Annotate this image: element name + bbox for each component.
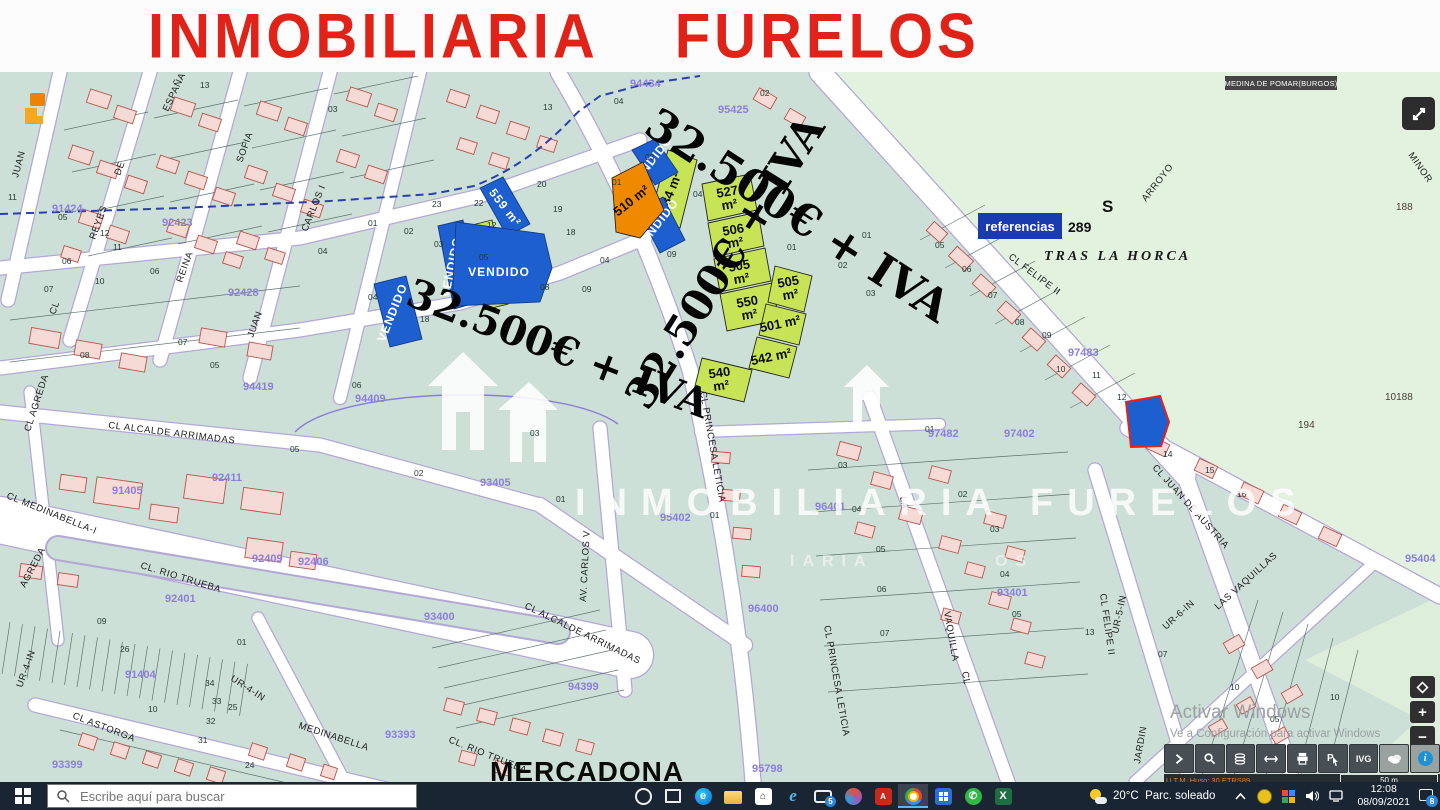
tray-apps-icon[interactable] <box>1277 785 1299 807</box>
search-tool-button[interactable] <box>1195 744 1225 773</box>
parcel-number: 05 <box>876 544 886 554</box>
activate-windows-line1: Activar Windows <box>1170 702 1380 724</box>
parcel-number: 01 <box>612 177 622 187</box>
cadastral-ref: 91424 <box>52 203 83 215</box>
cadastral-ref: 94434 <box>630 78 661 90</box>
parcel-number: 12 <box>487 220 497 230</box>
parcel-number: 06 <box>150 266 160 276</box>
tiles-icon <box>935 788 952 805</box>
cadastral-ref: 97483 <box>1068 347 1099 359</box>
cadastral-ref: 93405 <box>480 477 511 489</box>
parcel-number: 02 <box>760 88 770 98</box>
parcel-number: 14 <box>1163 449 1173 459</box>
ie-taskbar-icon[interactable]: e <box>778 784 808 808</box>
parcel-number: 10 <box>95 276 105 286</box>
ivg-button[interactable]: IVG <box>1349 744 1379 773</box>
cadastral-ref: 93401 <box>997 587 1028 599</box>
land-number: 10188 <box>1385 392 1413 403</box>
parcel-number: 01 <box>237 637 247 647</box>
weather-icon <box>1090 789 1107 804</box>
land-number: 188 <box>1396 202 1413 213</box>
parcel-number: 05 <box>479 252 489 262</box>
parcel-number: 08 <box>80 350 90 360</box>
cadastral-ref: 93400 <box>424 611 455 623</box>
whatsapp-taskbar-icon[interactable]: ✆ <box>958 784 988 808</box>
map-toolbar: P IVG i U.T.M. Huso: 30 ETRS89 50 m <box>1164 744 1440 782</box>
parcel-number: 10 <box>1056 364 1066 374</box>
parcel-number: 07 <box>44 284 54 294</box>
parcel-number: 07 <box>178 337 188 347</box>
parcel-number: 03 <box>328 104 338 114</box>
measure-button[interactable] <box>1256 744 1286 773</box>
parcel-number: 02 <box>414 468 424 478</box>
pan-button[interactable] <box>1410 676 1435 698</box>
parcel-number: 12 <box>100 228 110 238</box>
cadastral-ref: 97482 <box>928 428 959 440</box>
cadastral-ref: 92428 <box>228 287 259 299</box>
zoom-in-button[interactable]: + <box>1410 701 1435 723</box>
parcel-number: 07 <box>988 290 998 300</box>
parcel-number: 04 <box>1000 569 1010 579</box>
municipality-label: MEDINA DE POMAR(BURGOS) <box>1225 76 1337 90</box>
parcel-number: 09 <box>97 616 107 626</box>
parcel-number: 11 <box>8 192 17 202</box>
start-button[interactable] <box>10 787 36 805</box>
tray-shield-icon[interactable] <box>1253 785 1275 807</box>
parcel-number: 01 <box>368 218 378 228</box>
agency-banner: INMOBILIARIA FURELOS <box>0 0 1440 72</box>
cadastral-ref: 92423 <box>162 217 193 229</box>
parcel-number: 09 <box>667 249 677 259</box>
parcel-number: 05 <box>935 240 945 250</box>
parcel-number: 04 <box>368 292 378 302</box>
cadastral-ref: 91405 <box>112 485 143 497</box>
excel-taskbar-icon[interactable]: X <box>988 784 1018 808</box>
cortana-icon <box>635 788 652 805</box>
chrome-icon <box>905 788 922 805</box>
paint-icon <box>845 788 862 805</box>
parcel-number: 10 <box>1330 692 1340 702</box>
tray-volume-icon[interactable] <box>1301 785 1323 807</box>
watermark-text-2: OS <box>995 553 1034 570</box>
tray-network-icon[interactable] <box>1325 785 1347 807</box>
parcel-number: 08 <box>1015 317 1025 327</box>
tray-chevron-icon[interactable] <box>1229 785 1251 807</box>
parcel-number: 04 <box>600 255 610 265</box>
parcel-number: 07 <box>1158 649 1168 659</box>
tiles-taskbar-icon[interactable] <box>928 784 958 808</box>
vendido-label: VENDIDO <box>468 265 530 279</box>
parcel-number: 23 <box>432 199 442 209</box>
parcel-number: 19 <box>553 204 563 214</box>
mail-badge: 5 <box>825 796 836 807</box>
parcel-number: 22 <box>474 198 484 208</box>
parcel-number: 26 <box>120 644 130 654</box>
tras-la-horca-label: TRAS LA HORCA <box>1044 249 1191 264</box>
parcel-number: 03 <box>530 428 540 438</box>
chrome-taskbar-icon[interactable] <box>898 784 928 808</box>
search-icon <box>56 789 70 803</box>
activate-windows-watermark: Activar Windows Ve a Configuración para … <box>1170 702 1380 740</box>
clouds-button[interactable] <box>1379 744 1409 773</box>
cadastral-ref: 95404 <box>1405 553 1436 565</box>
cadastral-ref: 92406 <box>298 556 329 568</box>
weather-temp: 20°C <box>1113 790 1139 802</box>
parcel-number: 13 <box>543 102 553 112</box>
parcel-number: 05 <box>1012 609 1022 619</box>
parcel-number: 03 <box>838 460 848 470</box>
edge-icon: e <box>695 788 712 805</box>
cadastral-ref: 95798 <box>752 763 783 775</box>
search-input[interactable] <box>78 788 382 805</box>
parcel-number: 11 <box>113 242 122 252</box>
weather-condition: Parc. soleado <box>1145 790 1215 802</box>
parcel-number: 15 <box>1205 465 1215 475</box>
parcel-number: 02 <box>404 226 414 236</box>
weather-widget[interactable]: 20°C Parc. soleado <box>1090 789 1215 804</box>
parcel-number: 08 <box>540 282 550 292</box>
taskbar-clock[interactable]: 12:08 08/09/2021 <box>1357 783 1410 809</box>
info-button[interactable]: i <box>1410 744 1440 773</box>
land-number: 194 <box>1298 420 1315 431</box>
layers-button[interactable] <box>1226 744 1256 773</box>
fullscreen-icon <box>1410 105 1428 123</box>
parcel-number: 13 <box>1085 627 1095 637</box>
parcel-number: 06 <box>62 256 72 266</box>
watermark-text: INMOBILIARIA FURELOS <box>575 482 1310 524</box>
parcel-number: 09 <box>1042 330 1052 340</box>
whatsapp-icon: ✆ <box>965 788 982 805</box>
paint-taskbar-icon[interactable] <box>838 784 868 808</box>
clock-date: 08/09/2021 <box>1357 796 1410 809</box>
taskbar-search[interactable] <box>47 784 417 808</box>
parcel-number: 20 <box>537 179 547 189</box>
ie-icon: e <box>785 788 802 805</box>
cadastral-ref: 92411 <box>212 472 242 484</box>
parcel-number: 03 <box>645 152 655 162</box>
screen: 534 m²527m²506m²505m²550m²505m²501 m²542… <box>0 0 1440 810</box>
parcel-number: 31 <box>198 735 208 745</box>
cadastral-ref: 94409 <box>355 393 386 405</box>
pdf-taskbar-icon[interactable]: A <box>868 784 898 808</box>
referencias-label: referencias <box>985 219 1054 234</box>
parcel-select-button[interactable]: P <box>1318 744 1348 773</box>
cadastral-ref: 95425 <box>718 104 749 116</box>
parcel-number: 01 <box>556 494 566 504</box>
cadastral-ref: 94419 <box>243 381 274 393</box>
cadastral-ref: 93399 <box>52 759 83 771</box>
parcel-number: 09 <box>582 284 592 294</box>
cortana-taskbar-icon[interactable] <box>628 784 658 808</box>
parcel-number: 06 <box>352 380 362 390</box>
referencias-value: 289 <box>1068 219 1092 235</box>
store-taskbar-icon[interactable]: ⌂ <box>748 784 778 808</box>
agency-title: INMOBILIARIA FURELOS <box>0 0 980 72</box>
parcel-number: 25 <box>228 702 238 712</box>
parcel-number: 07 <box>880 628 890 638</box>
pdf-icon: A <box>875 788 892 805</box>
parcel-number: 10 <box>148 704 158 714</box>
parcel-number: 06 <box>877 584 887 594</box>
edge-taskbar-icon[interactable]: e <box>688 784 718 808</box>
parcel-number: 13 <box>200 80 210 90</box>
cadastral-ref: 92409 <box>252 553 283 565</box>
parcel-number: 03 <box>434 239 444 249</box>
cadastral-ref: 96400 <box>748 603 779 615</box>
parcel-number: 12 <box>1117 392 1127 402</box>
action-center-icon[interactable]: 8 <box>1416 786 1436 806</box>
excel-icon: X <box>995 788 1012 805</box>
cadastral-ref: 94399 <box>568 681 599 693</box>
parcel-number: 34 <box>205 678 215 688</box>
system-tray: 20°C Parc. soleado 12:08 08/09/2021 8 <box>1090 782 1440 810</box>
watermark-text-2: IARIA <box>790 553 874 570</box>
parcel-number: 04 <box>614 96 624 106</box>
cadastral-ref: 93393 <box>385 729 416 741</box>
folder-icon <box>724 791 742 804</box>
parcel-number: 24 <box>245 760 255 770</box>
print-button[interactable] <box>1287 744 1317 773</box>
plot-highlighted[interactable] <box>1126 396 1169 447</box>
cadastral-ref: 91404 <box>125 669 156 681</box>
parcel-number: 32 <box>206 716 216 726</box>
parcel-number: 33 <box>212 696 222 706</box>
parcel-number: 05 <box>290 444 300 454</box>
s-label: S <box>1102 197 1113 216</box>
mail-taskbar-icon[interactable]: 5 <box>808 784 838 808</box>
parcel-number: 18 <box>566 227 576 237</box>
view-icon <box>665 789 681 803</box>
cadastral-ref: 97402 <box>1004 428 1035 440</box>
cadastral-map[interactable]: 534 m²527m²506m²505m²550m²505m²501 m²542… <box>0 0 1440 810</box>
cadastral-ref: 92401 <box>165 593 196 605</box>
parcel-number: 10 <box>1230 682 1240 692</box>
parcel-number: 03 <box>990 524 1000 534</box>
fullscreen-button[interactable] <box>1402 97 1435 130</box>
view-taskbar-icon[interactable] <box>658 784 688 808</box>
parcel-number: 11 <box>1092 370 1101 380</box>
windows-taskbar: e⌂e5A✆X 20°C Parc. soleado 12:08 08/09/2… <box>0 782 1440 810</box>
parcel-number: 06 <box>962 264 972 274</box>
street-label: CL <box>959 671 972 686</box>
folder-taskbar-icon[interactable] <box>718 784 748 808</box>
store-icon: ⌂ <box>755 788 772 805</box>
parcel-number: 04 <box>318 246 328 256</box>
activate-windows-line2: Ve a Configuración para activar Windows <box>1170 728 1380 740</box>
notification-badge: 8 <box>1426 795 1438 807</box>
parcel-number: 05 <box>210 360 220 370</box>
expand-toolbar-button[interactable] <box>1164 744 1194 773</box>
parcel-number: 04 <box>693 189 703 199</box>
clock-time: 12:08 <box>1357 783 1410 796</box>
